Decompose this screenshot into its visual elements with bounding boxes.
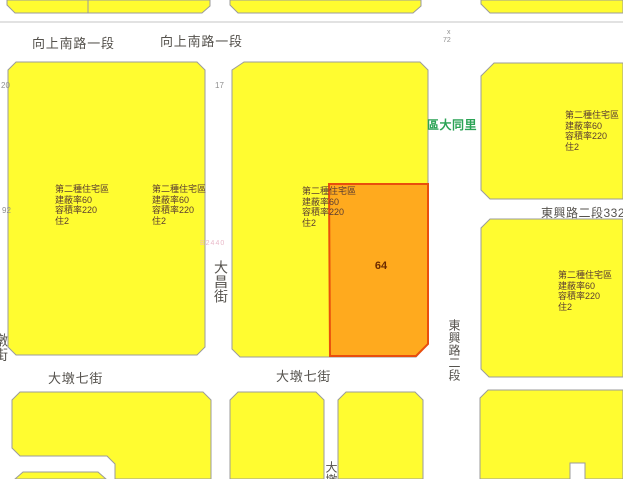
zone-far: 容積率220 bbox=[558, 291, 612, 302]
zone-coverage: 建蔽率60 bbox=[302, 197, 356, 208]
street-label-xiangshang-2: 向上南路一段 bbox=[160, 31, 243, 50]
street-label-xiangshang-1: 向上南路一段 bbox=[32, 33, 115, 52]
zone-class: 住2 bbox=[302, 218, 356, 229]
zone-far: 容積率220 bbox=[565, 131, 619, 142]
zone-label-middle: 第二種住宅區 建蔽率60 容積率220 住2 bbox=[302, 186, 356, 228]
index-marker-20: 20 bbox=[1, 81, 10, 90]
street-label-left-edge-partial: 墩街 bbox=[0, 333, 11, 362]
zoning-block-bottom-left-L[interactable] bbox=[12, 392, 211, 479]
street-label-dongxing: 東興路二段 bbox=[446, 319, 463, 382]
zone-coverage: 建蔽率60 bbox=[565, 121, 619, 132]
zone-far: 容積率220 bbox=[152, 205, 206, 216]
zoning-block-bottom-left-small[interactable] bbox=[15, 472, 106, 479]
survey-marker-72: 72 bbox=[443, 37, 451, 44]
zone-far: 容積率220 bbox=[302, 207, 356, 218]
road-code-label: B2440 bbox=[200, 240, 225, 247]
zone-far: 容積率220 bbox=[55, 205, 109, 216]
zone-class: 住2 bbox=[558, 302, 612, 313]
zone-type: 第二種住宅區 bbox=[55, 184, 109, 195]
district-label: 區大同里 bbox=[427, 116, 477, 133]
zone-label-right-upper: 第二種住宅區 建蔽率60 容積率220 住2 bbox=[565, 110, 619, 152]
zoning-block-top-left[interactable] bbox=[7, 0, 210, 13]
index-marker-17: 17 bbox=[215, 81, 224, 90]
zone-class: 住2 bbox=[152, 216, 206, 227]
zone-class: 住2 bbox=[565, 142, 619, 153]
zoning-map-viewport[interactable]: 向上南路一段 向上南路一段 大墩七街 大墩七街 大昌街 東興路二段 東興路二段3… bbox=[0, 0, 623, 479]
index-marker-92: 92 bbox=[2, 206, 11, 215]
zone-coverage: 建蔽率60 bbox=[152, 195, 206, 206]
map-canvas bbox=[0, 0, 623, 479]
zone-coverage: 建蔽率60 bbox=[558, 281, 612, 292]
zone-label-left-2: 第二種住宅區 建蔽率60 容積率220 住2 bbox=[152, 184, 206, 226]
zoning-block-bottom-right[interactable] bbox=[480, 390, 623, 479]
parcel-number-label: 64 bbox=[366, 260, 396, 272]
street-label-dachang: 大昌街 bbox=[211, 260, 231, 304]
zone-class: 住2 bbox=[55, 216, 109, 227]
street-label-dadun7-2: 大墩七街 bbox=[276, 366, 331, 385]
zoning-block-bottom-middle-1[interactable] bbox=[230, 392, 324, 479]
street-label-dongxing-lane332: 東興路二段332巷 bbox=[541, 204, 623, 221]
zone-type: 第二種住宅區 bbox=[302, 186, 356, 197]
street-label-bottom-partial: 大墩 bbox=[323, 461, 340, 479]
zone-type: 第二種住宅區 bbox=[152, 184, 206, 195]
zone-type: 第二種住宅區 bbox=[565, 110, 619, 121]
survey-marker-x: x bbox=[447, 29, 451, 36]
zone-type: 第二種住宅區 bbox=[558, 270, 612, 281]
zoning-block-bottom-middle-2[interactable] bbox=[338, 392, 423, 479]
zoning-block-top-right[interactable] bbox=[481, 0, 623, 13]
zone-label-right-lower: 第二種住宅區 建蔽率60 容積率220 住2 bbox=[558, 270, 612, 312]
street-label-dadun7-1: 大墩七街 bbox=[48, 368, 103, 387]
zone-coverage: 建蔽率60 bbox=[55, 195, 109, 206]
zone-label-left-1: 第二種住宅區 建蔽率60 容積率220 住2 bbox=[55, 184, 109, 226]
zoning-block-top-middle[interactable] bbox=[230, 0, 421, 13]
